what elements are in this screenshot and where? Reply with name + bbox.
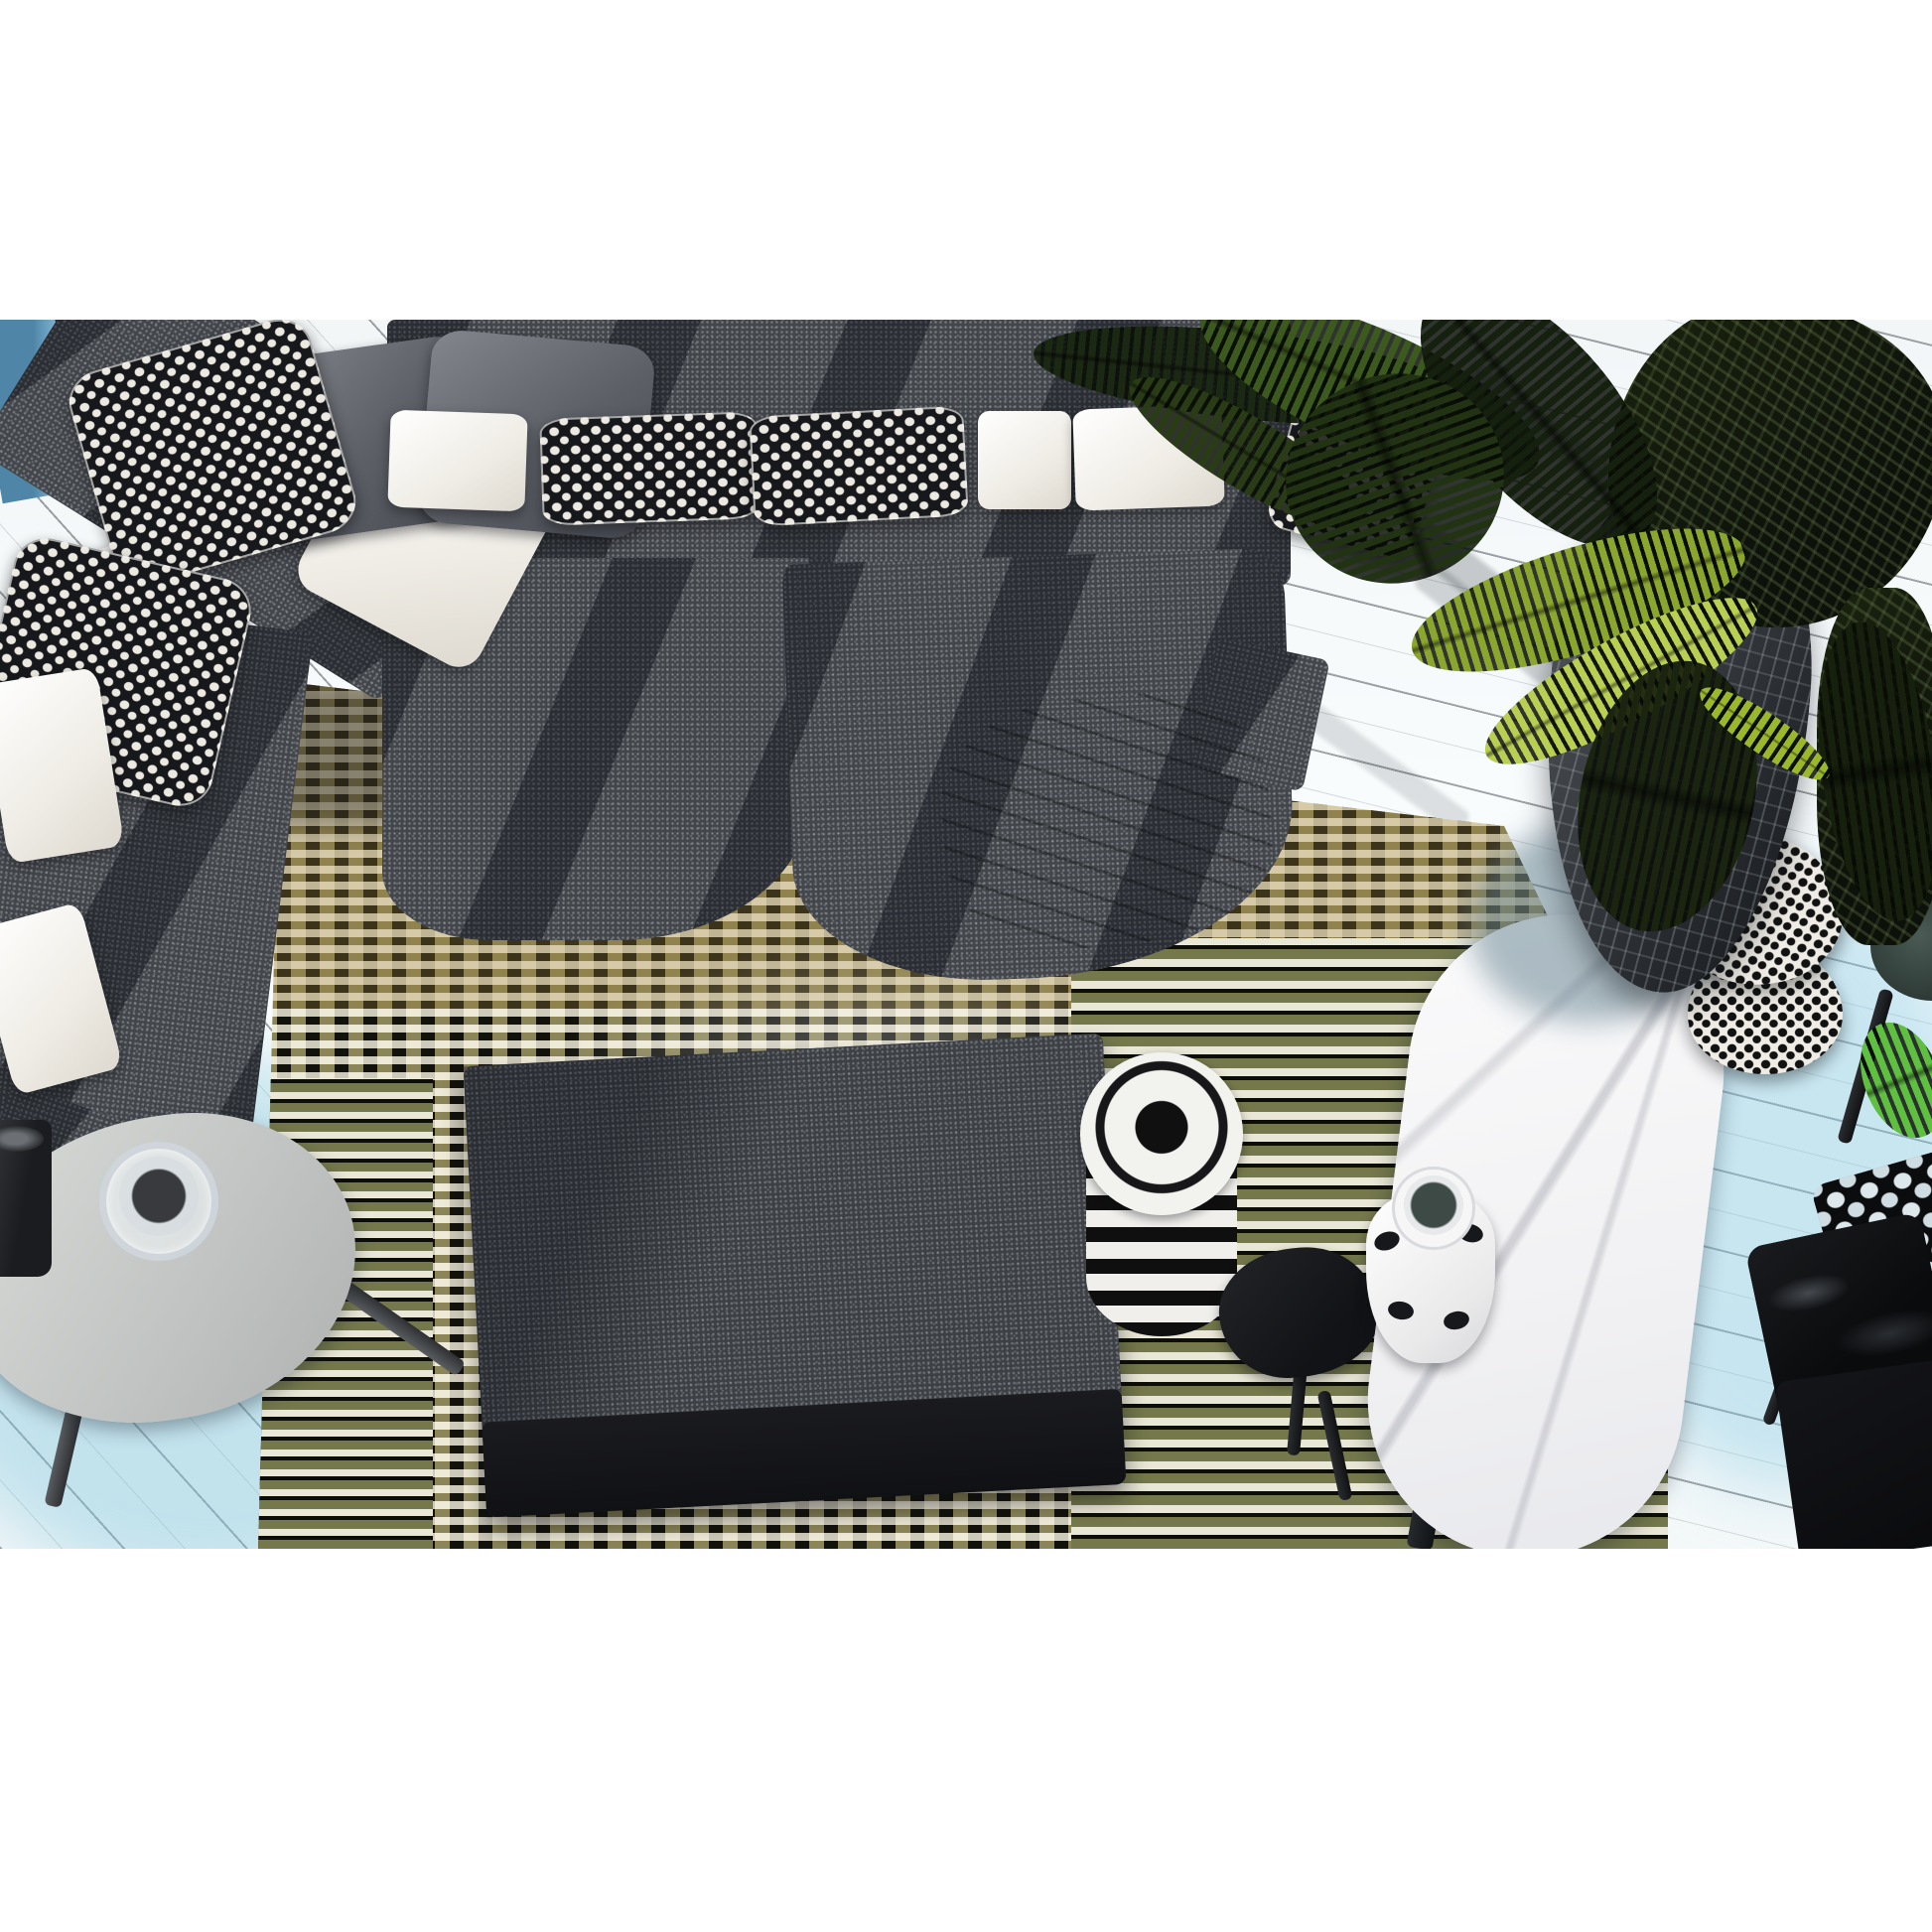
black-bottle-vase (0, 1120, 52, 1277)
square-pouf (464, 1033, 1127, 1517)
vase-hole (1372, 1228, 1403, 1254)
polka-dot-lumbar-pillow (749, 405, 969, 526)
white-pillow (387, 410, 527, 512)
striped-stool-top (1080, 1052, 1243, 1215)
armchair-frame (1775, 1359, 1932, 1549)
striped-stool (1080, 1052, 1243, 1342)
glass-tumbler (99, 1142, 218, 1261)
photo-canvas (0, 0, 1932, 1932)
vase-hole (1387, 1300, 1416, 1321)
vase-mouth (1392, 1167, 1475, 1250)
polka-dot-lumbar-pillow (539, 411, 760, 526)
terrace-photo (0, 320, 1932, 1549)
perforated-vase (1366, 1167, 1495, 1370)
vase-hole (1442, 1309, 1470, 1331)
white-pillow (978, 411, 1071, 509)
